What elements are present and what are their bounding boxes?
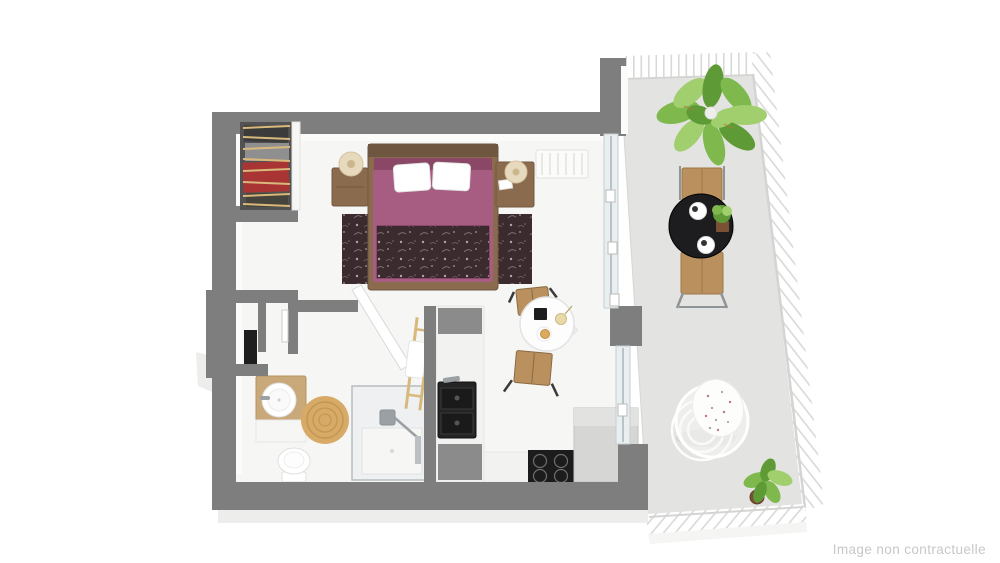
drink-glass: [556, 314, 567, 325]
wardrobe-frame: [292, 122, 300, 210]
floorplan-stage: Image non contractuelle: [0, 0, 1000, 563]
wall-bottom: [212, 482, 648, 510]
toilet: [278, 448, 310, 482]
slab-edge-bottom: [218, 510, 648, 523]
headboard: [368, 144, 498, 157]
watermark-text: Image non contractuelle: [833, 542, 986, 557]
apartment: [196, 58, 648, 523]
coffee-maker: [534, 308, 547, 320]
glass-handle: [606, 190, 615, 202]
wall-bathroom-north: [296, 300, 358, 312]
floorplan-rendering: [0, 0, 1000, 563]
sink-faucet: [260, 396, 270, 400]
glass-handle: [618, 404, 627, 416]
kitchen-window: [616, 346, 630, 444]
induction-hob: [528, 450, 574, 484]
wall-bathroom-east: [424, 306, 436, 482]
pillow-left: [393, 163, 431, 192]
built-in-wardrobe: [240, 122, 300, 210]
bistro-table: [520, 297, 574, 351]
nightstand-right: [496, 161, 534, 207]
radiator: [536, 150, 588, 178]
pillow-right: [432, 162, 470, 191]
walk-in-shower: [352, 386, 430, 480]
outdoor-plate-top: [690, 203, 707, 220]
foot-throw: [377, 226, 489, 278]
wall-right-mid: [610, 306, 642, 346]
open-shelf-top: [438, 308, 482, 334]
round-jute-rug: [301, 396, 349, 444]
wall-right-low: [618, 444, 648, 486]
sliding-glass-wall: [604, 134, 619, 308]
entry-closet-door: [282, 310, 288, 342]
shower-head: [380, 410, 395, 425]
shower-column: [415, 436, 421, 464]
open-shelf-bottom: [438, 444, 482, 480]
vanity-with-round-sink: [256, 376, 306, 442]
glass-handle: [610, 294, 619, 306]
double-bed: [368, 144, 498, 290]
railing-top: [622, 52, 756, 80]
glass-handle: [608, 242, 617, 254]
front-door-opening: [244, 330, 257, 364]
black-sink: [438, 376, 476, 438]
towel: [405, 341, 427, 379]
